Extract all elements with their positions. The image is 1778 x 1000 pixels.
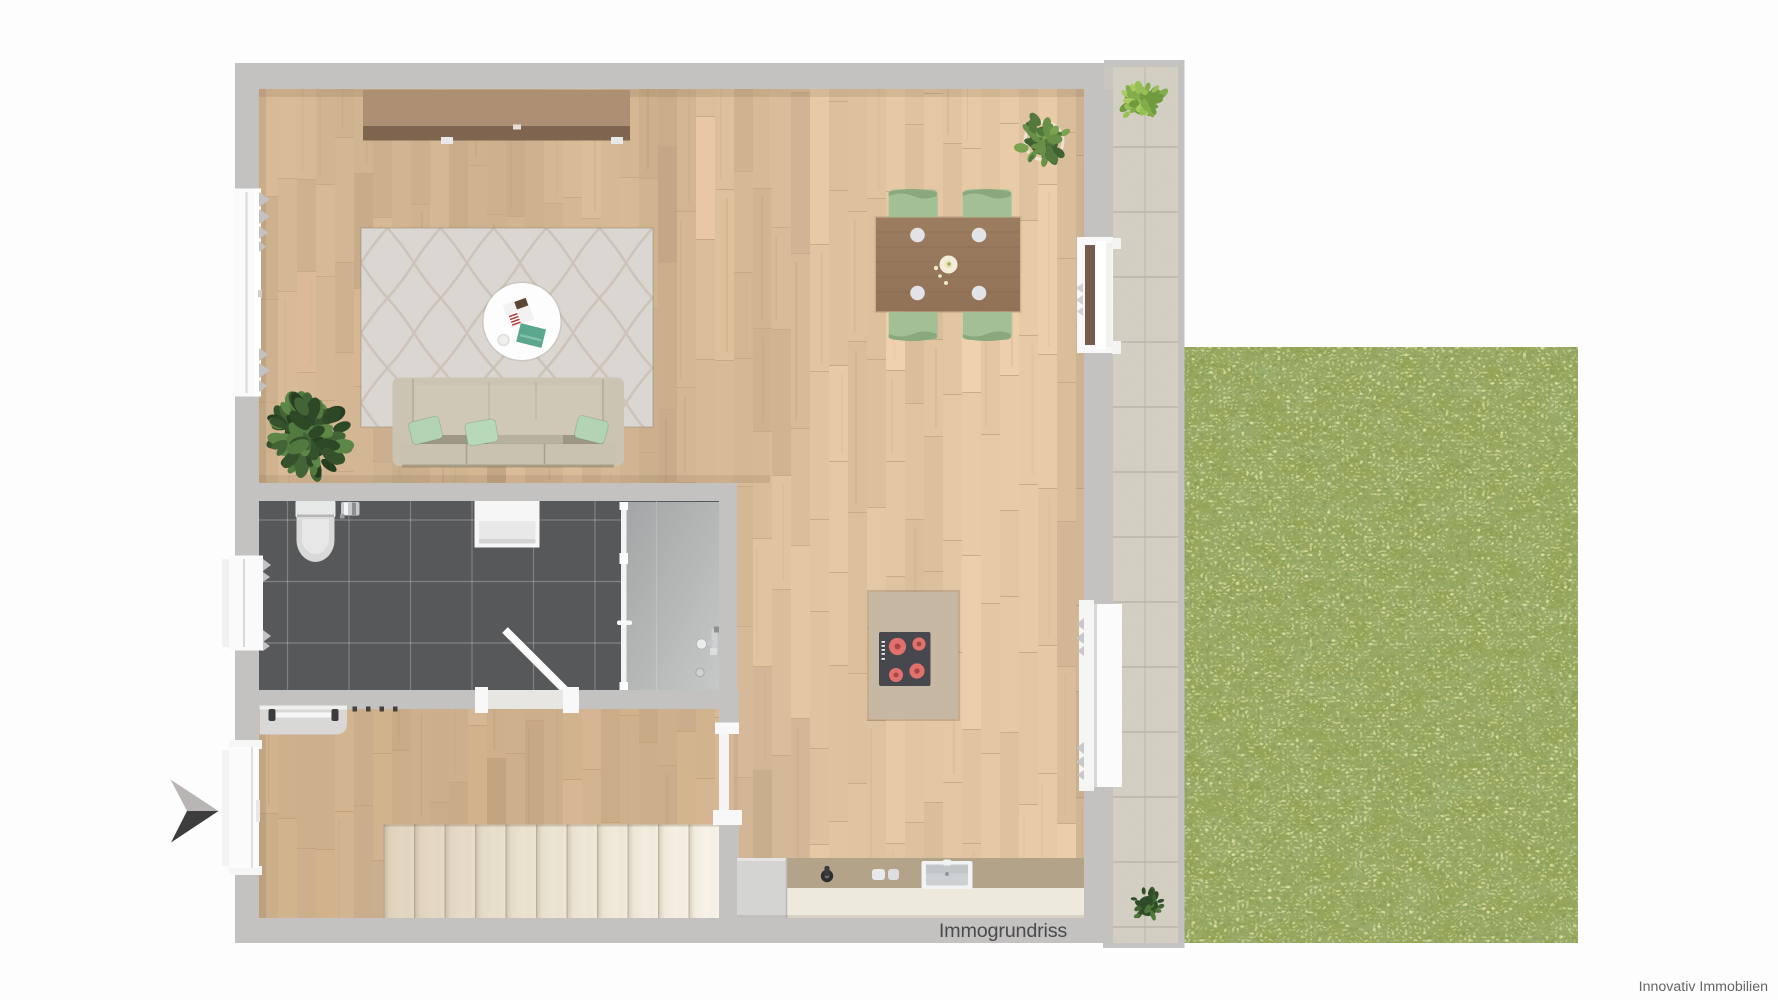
svg-text:Immogrundriss: Immogrundriss xyxy=(939,920,1068,942)
svg-text:Innovativ Immobilien: Innovativ Immobilien xyxy=(1639,979,1768,995)
